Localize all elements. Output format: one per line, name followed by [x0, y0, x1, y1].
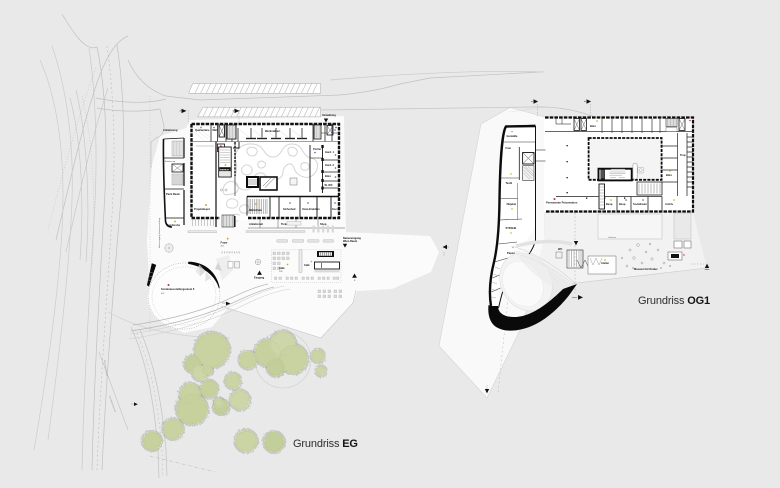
svg-text:Gemälde: Gemälde — [507, 134, 519, 138]
svg-text:Büro: Büro — [666, 173, 672, 177]
svg-text:Besp.: Besp. — [606, 202, 613, 206]
svg-text:Luftraum: Luftraum — [608, 236, 616, 239]
svg-text:Objekte: Objekte — [507, 202, 517, 206]
svg-text:Café: Café — [304, 263, 310, 267]
svg-text:Soz.R: Soz.R — [332, 207, 339, 211]
svg-text:Büro: Büro — [325, 174, 331, 178]
svg-text:Bibliothek: Bibliothek — [249, 208, 262, 212]
svg-text:W. WC: W. WC — [325, 183, 333, 187]
svg-text:Anlieferung: Anlieferung — [163, 128, 178, 132]
svg-text:Sonderausstellungsraum 6: Sonderausstellungsraum 6 — [161, 287, 195, 291]
svg-text:Gard. 1: Gard. 1 — [325, 150, 334, 154]
svg-text:Sozialraum: Sozialraum — [633, 202, 648, 206]
svg-text:Sicherheit: Sicherheit — [283, 207, 296, 211]
svg-text:Eingang: Eingang — [254, 276, 265, 280]
svg-text:Wien-Raum: Wien-Raum — [343, 239, 358, 243]
svg-text:Garderobe: Garderobe — [167, 223, 181, 227]
svg-text:Permanente Präsentation: Permanente Präsentation — [546, 201, 578, 205]
svg-text:Café: Café — [279, 266, 285, 270]
svg-text:Anlieferung: Anlieferung — [165, 160, 175, 163]
svg-text:Anlieferzeit: Anlieferzeit — [249, 222, 263, 226]
svg-text:WC: WC — [558, 247, 562, 251]
svg-text:Besp.: Besp. — [619, 202, 626, 206]
svg-text:Archiv: Archiv — [665, 202, 674, 206]
svg-text:Trep.: Trep. — [680, 153, 686, 157]
svg-text:Atelier: Atelier — [601, 261, 609, 265]
svg-text:Museum für Kinder: Museum für Kinder — [634, 267, 658, 271]
svg-text:WERKST.: WERKST. — [220, 169, 230, 171]
svg-text:Verw.direktion: Verw.direktion — [302, 207, 320, 211]
svg-text:Verwaltung: Verwaltung — [322, 113, 336, 117]
svg-text:Foto: Foto — [506, 146, 512, 150]
svg-text:Grundriss OG1: Grundriss OG1 — [638, 295, 710, 307]
svg-text:Shop: Shop — [320, 222, 327, 226]
svg-text:Werkstätten: Werkstätten — [265, 129, 280, 133]
svg-text:Projektdepot: Projektdepot — [194, 207, 210, 211]
svg-text:STRAUB: STRAUB — [506, 226, 517, 230]
svg-text:Büro: Büro — [590, 124, 596, 128]
svg-text:Pack Raum: Pack Raum — [166, 192, 181, 196]
svg-text:Quarantäne: Quarantäne — [195, 128, 210, 132]
svg-text:Müll: Müll — [213, 128, 218, 132]
svg-text:Portier: Portier — [313, 147, 321, 151]
svg-text:Foyer: Foyer — [221, 241, 228, 245]
svg-text:Nebeneingang Sonderausstellung: Nebeneingang Sonderausstellung — [158, 218, 161, 248]
svg-text:Grundriss EG: Grundriss EG — [293, 438, 358, 450]
svg-text:Gard. 2: Gard. 2 — [325, 163, 334, 167]
svg-text:Textil: Textil — [506, 181, 513, 185]
